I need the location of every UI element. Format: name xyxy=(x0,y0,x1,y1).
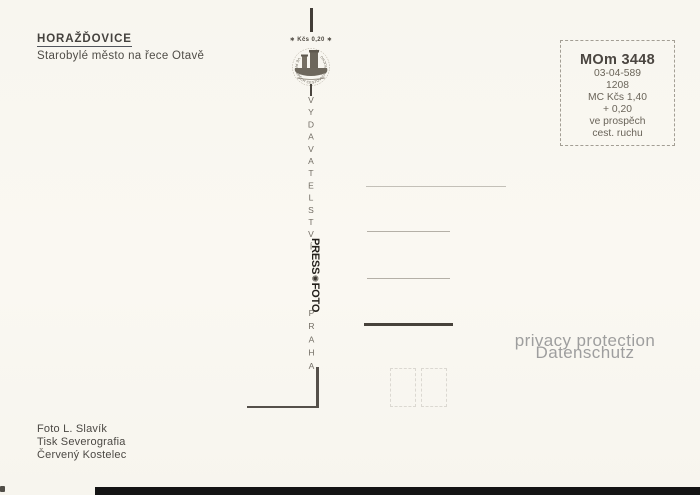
postcard-subtitle: Starobylé město na řece Otavě xyxy=(37,50,204,62)
address-line-4 xyxy=(364,323,453,326)
scanner-edge-speck xyxy=(0,486,5,492)
city-vertical-text: PRAHA xyxy=(307,308,317,374)
pressfoto-logo: PRESS✺FOTO xyxy=(309,238,321,312)
credit-city: Červený Kostelec xyxy=(37,449,126,462)
ctk-emblem-icon: ✺ xyxy=(310,274,320,282)
caption-block: HORAŽĎOVICE Starobylé město na řece Otav… xyxy=(37,29,204,62)
spine-line-top xyxy=(310,8,313,32)
credits-block: Foto L. Slavík Tisk Severografia Červený… xyxy=(37,423,126,463)
credit-print: Tisk Severografia xyxy=(37,436,126,449)
postage-dash-box-left xyxy=(390,368,416,407)
picture-corner-horizontal-line xyxy=(247,406,318,409)
postcard-back-scan: HORAŽĎOVICE Starobylé město na řece Otav… xyxy=(0,0,700,495)
publisher-vertical-text: VYDAVATELSTVÍ xyxy=(306,95,316,254)
stamp-line: + 0,20 xyxy=(561,104,674,116)
pressfoto-press-text: PRESS xyxy=(309,238,321,274)
address-line-3 xyxy=(367,278,450,279)
stamp-price-box: MOm 3448 03-04-589 1208 MC Kčs 1,40 + 0,… xyxy=(560,40,675,146)
stamp-code: MOm 3448 xyxy=(561,52,674,68)
privacy-watermark: privacy protection Datenschutz xyxy=(480,335,690,359)
watermark-line-2: Datenschutz xyxy=(480,347,690,359)
stamp-line: 1208 xyxy=(561,80,674,92)
address-line-1 xyxy=(366,186,506,187)
stamp-line: ve prospěch xyxy=(561,116,674,128)
postcard-title: HORAŽĎOVICE xyxy=(37,33,132,47)
address-line-2 xyxy=(367,231,450,232)
postage-value-text: ∗ Kčs 0,20 ∗ xyxy=(290,37,333,43)
credit-photo: Foto L. Slavík xyxy=(37,423,126,436)
picture-corner-vertical-line xyxy=(316,367,319,408)
postage-emblem: ∗ Kčs 0,20 ∗ VE PROSPĚCH CESTOVNÍHO RUCH… xyxy=(282,33,340,91)
stamp-line: cest. ruchu xyxy=(561,128,674,140)
postage-dash-box-right xyxy=(421,368,447,407)
stamp-line: MC Kčs 1,40 xyxy=(561,92,674,104)
scanner-edge-bar xyxy=(95,487,700,495)
stamp-line: 03-04-589 xyxy=(561,68,674,80)
